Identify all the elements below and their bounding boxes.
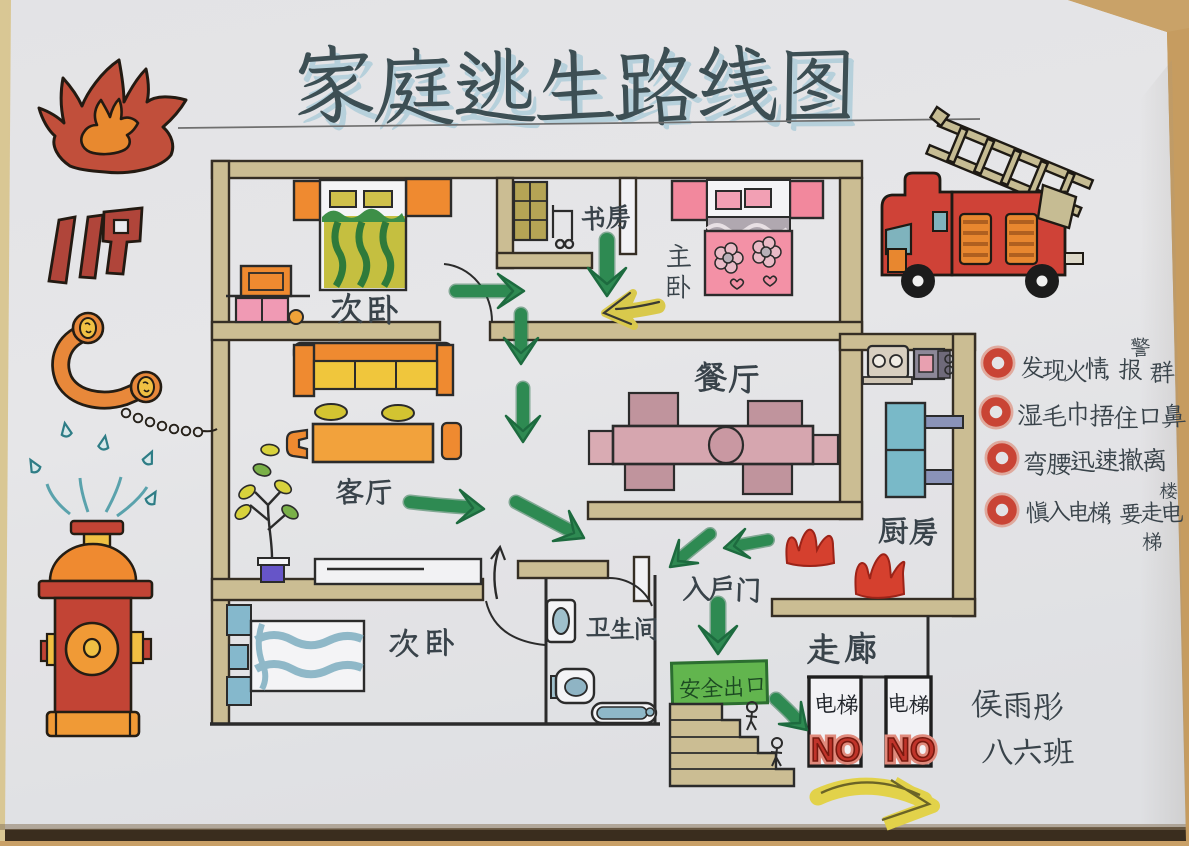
svg-text:NO: NO — [886, 731, 936, 768]
svg-text:NO: NO — [811, 731, 861, 768]
